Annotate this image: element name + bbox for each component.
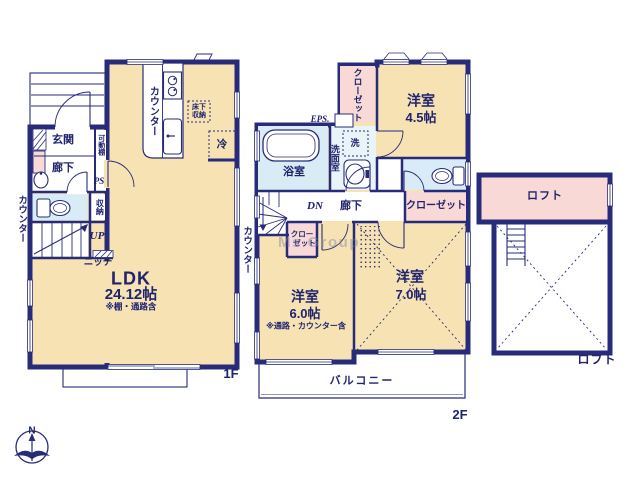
label-fridge: 冷 [217,139,228,150]
label-movable-shelf: 可動棚 [97,135,105,156]
label-room45-size: 4.5帖 [405,111,436,125]
label-loft-inner: ロフト [527,191,563,203]
landing [378,159,401,190]
label-closet-right: クローゼット [406,202,466,213]
bathtub-icon [263,130,319,161]
label-compass-north: N [28,427,35,438]
label-counter-right: カウンター [241,226,251,274]
label-bath: 浴室 [283,167,305,179]
window [608,184,613,206]
label-closet-top: クローゼット [352,68,363,122]
eps-box [335,114,353,127]
terrace [63,369,187,387]
washbasin-icon-1f [34,172,48,188]
label-stairs-up: UP [90,231,105,243]
loft-ladder-area-hatch [358,226,380,268]
entrance-hatch [33,129,46,150]
label-washroom: 洗面室 [329,145,339,172]
label-genkan: 玄関 [52,135,74,147]
label-room60-size: 6.0帖 [289,307,320,321]
stove-icon [164,72,182,99]
label-niche: ニッチ [84,258,113,268]
label-stairs-down: DN [307,201,323,213]
label-loft-outer: ロフト [577,354,616,367]
label-floor2: 2F [452,408,467,422]
floor2-structure [255,53,471,398]
toilet-icon-1f [37,199,70,217]
label-room70-name: 洋室 [396,269,424,284]
label-pipe-space: PS [94,177,105,187]
label-room45-name: 洋室 [407,93,435,108]
label-room60-note: ※通路・カウンター含 [266,323,346,332]
label-storage-1f: 収納 [95,199,104,215]
watermark: Ms Group [278,235,360,251]
label-room60-name: 洋室 [291,289,319,304]
label-ldk-note: ※棚・通路含 [106,302,157,311]
kitchen-sink-icon [164,119,182,154]
shoe-cabinet [33,151,45,173]
toilet-icon-2f [432,167,464,185]
label-counter-kitchen: カウンター [147,86,158,136]
floor1-structure [28,54,240,387]
label-washer: 洗 [350,139,359,149]
washbasin-icon-2f [344,160,370,188]
label-hallway-2f: 廊下 [340,201,362,213]
label-eps: EPS. [311,115,330,125]
floor-plan-canvas: 玄関 廊下 可動棚 PS 収納 UP ニッチ カウンター カウンター 床下収納 … [0,0,640,480]
label-room70-size: 7.0帖 [395,288,426,302]
label-hallway-1f: 廊下 [52,163,74,175]
label-underfloor-storage: 床下収納 [192,104,206,120]
label-balcony: バルコニー [330,376,395,388]
label-counter-left: カウンター [16,195,26,243]
label-floor1: 1F [223,367,238,381]
